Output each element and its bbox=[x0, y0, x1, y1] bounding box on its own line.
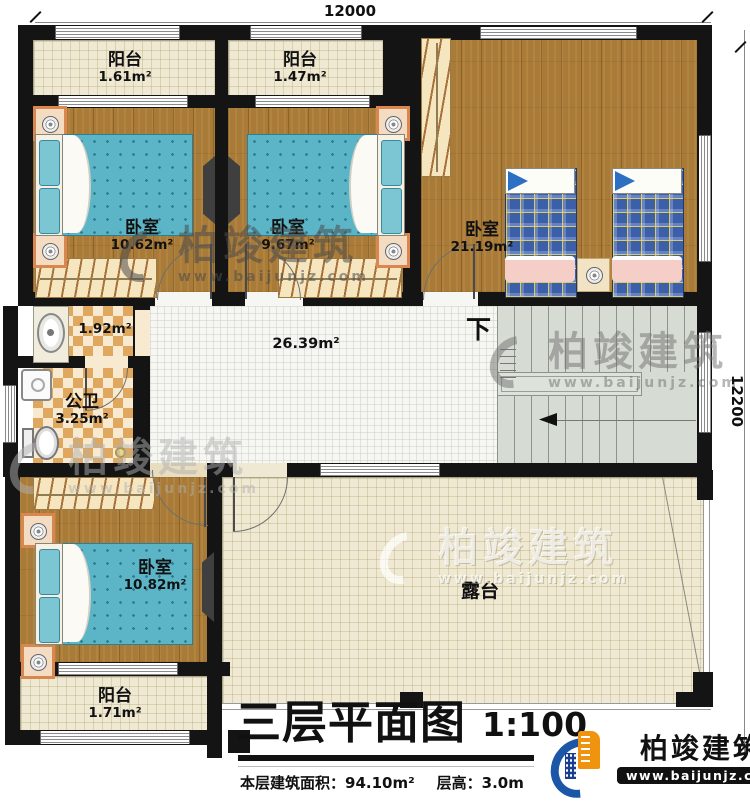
wall-left-lower bbox=[5, 477, 20, 745]
sink-faucet-icon bbox=[47, 329, 54, 336]
toilet-tank bbox=[22, 428, 34, 458]
room-area: 21.19m² bbox=[437, 240, 527, 256]
logo-column-icon bbox=[565, 753, 576, 779]
door-leaf bbox=[204, 477, 206, 527]
door-opening-bathroom bbox=[85, 356, 128, 368]
room-label-bedroom4: 卧室 10.82m² bbox=[110, 560, 200, 593]
room-area: 10.62m² bbox=[97, 238, 187, 254]
room-name: 公卫 bbox=[37, 394, 127, 412]
window-bedroom1-balcony bbox=[58, 96, 188, 107]
door-opening-terrace bbox=[233, 463, 287, 477]
dimension-line-top bbox=[35, 22, 711, 23]
room-name: 阳台 bbox=[70, 688, 160, 706]
window-balcony1-top bbox=[55, 26, 180, 39]
room-label-bath-upper: 1.92m² bbox=[60, 322, 150, 338]
room-label-hall: 26.39m² bbox=[261, 336, 351, 353]
stair-upper-flight bbox=[497, 306, 697, 372]
wardrobe-bedroom4 bbox=[33, 477, 155, 510]
room-name: 卧室 bbox=[97, 220, 187, 238]
room-label-bedroom1: 卧室 10.62m² bbox=[97, 220, 187, 253]
room-label-balcony3: 阳台 1.71m² bbox=[70, 688, 160, 721]
washer-door-icon bbox=[31, 378, 45, 392]
nightstand bbox=[33, 233, 67, 268]
pillow bbox=[39, 549, 60, 595]
lamp-icon bbox=[42, 243, 59, 260]
wardrobe-bedroom3 bbox=[421, 38, 451, 177]
room-name: 阳台 bbox=[255, 52, 345, 70]
lamp-icon bbox=[42, 116, 59, 133]
pillow bbox=[39, 188, 60, 234]
pillow bbox=[39, 597, 60, 643]
room-area: 9.67m² bbox=[243, 238, 333, 254]
wardrobe-rail bbox=[38, 494, 150, 496]
room-area: 1.71m² bbox=[70, 706, 160, 722]
room-area: 1.61m² bbox=[80, 70, 170, 86]
room-label-bathroom: 公卫 3.25m² bbox=[37, 394, 127, 427]
floor-area-text: 本层建筑面积：94.10m² bbox=[240, 772, 415, 793]
room-name: 卧室 bbox=[110, 560, 200, 578]
pillow-fold-icon bbox=[508, 171, 528, 191]
window-bathroom-left bbox=[3, 385, 16, 443]
wardrobe-rail bbox=[40, 278, 152, 280]
nightstand bbox=[376, 233, 410, 268]
lamp-icon bbox=[30, 523, 47, 540]
wardrobe-rail bbox=[283, 278, 397, 280]
pillow bbox=[381, 140, 402, 186]
lamp-icon bbox=[385, 243, 402, 260]
floor-drain-icon bbox=[115, 447, 126, 458]
terrace-pillar-bottomright-b bbox=[676, 692, 713, 707]
nightstand-between-beds bbox=[577, 258, 610, 292]
nightstand bbox=[21, 644, 55, 679]
room-area: 1.47m² bbox=[255, 70, 345, 86]
stair-lower-flight bbox=[497, 396, 642, 463]
company-logo: 柏竣建筑 www.baijunjz.com bbox=[552, 729, 750, 789]
room-label-bedroom3: 卧室 21.19m² bbox=[437, 222, 527, 255]
door-leaf bbox=[233, 477, 235, 531]
room-area: 26.39m² bbox=[261, 336, 351, 353]
wall-left-upper bbox=[18, 25, 33, 306]
twin-bed-2-pillow bbox=[612, 168, 682, 194]
stair-railing-inner bbox=[501, 376, 638, 392]
window-balcony2-top bbox=[250, 26, 362, 39]
logo-building-icon bbox=[578, 731, 600, 769]
dimension-width: 12000 bbox=[300, 2, 400, 20]
title-block: 三层平面图 1:100 bbox=[236, 698, 587, 748]
stair-railing bbox=[497, 372, 642, 396]
window-bedroom3-right bbox=[699, 135, 711, 262]
window-terrace-wall bbox=[320, 464, 440, 476]
wall-balcony2-right bbox=[383, 40, 421, 98]
window-bedroom2-balcony bbox=[255, 96, 370, 107]
room-label-bedroom2: 卧室 9.67m² bbox=[243, 220, 333, 253]
room-name: 卧室 bbox=[437, 222, 527, 240]
stair-break-mark bbox=[500, 344, 516, 378]
twin-bed-1-blanket-edge bbox=[505, 256, 575, 282]
room-area: 1.92m² bbox=[60, 322, 150, 338]
dimension-depth: 12200 bbox=[728, 356, 746, 446]
info-line: 本层建筑面积：94.10m² 层高：3.0m bbox=[240, 772, 524, 793]
toilet-bowl bbox=[34, 426, 59, 460]
room-label-balcony2: 阳台 1.47m² bbox=[255, 52, 345, 85]
window-bedroom4-balcony bbox=[58, 663, 178, 675]
room-area: 3.25m² bbox=[37, 412, 127, 428]
door-leaf bbox=[210, 244, 212, 299]
floor-plan-canvas: 阳台 1.61m² 阳台 1.47m² 卧室 10.62m² 卧室 9.67m²… bbox=[0, 0, 750, 803]
lamp-icon bbox=[586, 267, 603, 284]
title-underline bbox=[238, 755, 534, 761]
bed-sheet bbox=[349, 135, 379, 233]
company-name: 柏竣建筑 bbox=[640, 734, 750, 765]
company-url: www.baijunjz.com bbox=[617, 767, 750, 784]
stair-direction-line bbox=[556, 420, 696, 421]
title-underline-thin bbox=[238, 766, 534, 767]
hall-floor bbox=[150, 306, 497, 463]
terrace-pillar-topright bbox=[697, 470, 713, 500]
wardrobe-rail bbox=[436, 43, 438, 172]
stairs-down-label: 下 bbox=[466, 310, 491, 346]
pillow-fold-icon bbox=[615, 171, 635, 191]
pillow bbox=[39, 140, 60, 186]
page-title: 三层平面图 bbox=[236, 698, 466, 748]
room-area: 10.82m² bbox=[110, 578, 200, 594]
window-bedroom3-top bbox=[480, 27, 637, 39]
pillow bbox=[381, 188, 402, 234]
tv-bedroom1 bbox=[203, 156, 215, 224]
floor-height-text: 层高：3.0m bbox=[437, 772, 524, 793]
lamp-icon bbox=[385, 116, 402, 133]
window-stairs-right bbox=[699, 332, 711, 433]
room-name: 露台 bbox=[435, 582, 525, 602]
room-label-terrace: 露台 bbox=[435, 582, 525, 602]
room-name: 阳台 bbox=[80, 52, 170, 70]
twin-bed-2-blanket-edge bbox=[612, 256, 682, 282]
room-label-balcony1: 阳台 1.61m² bbox=[80, 52, 170, 85]
lamp-icon bbox=[30, 654, 47, 671]
company-logo-icon bbox=[552, 729, 610, 789]
room-name: 卧室 bbox=[243, 220, 333, 238]
wall-bedroom1-2-divider bbox=[215, 25, 228, 306]
tv-bedroom2 bbox=[228, 156, 240, 224]
tv-bedroom4 bbox=[202, 552, 214, 622]
twin-bed-1-pillow bbox=[505, 168, 575, 194]
window-balcony3-bottom bbox=[40, 731, 190, 744]
